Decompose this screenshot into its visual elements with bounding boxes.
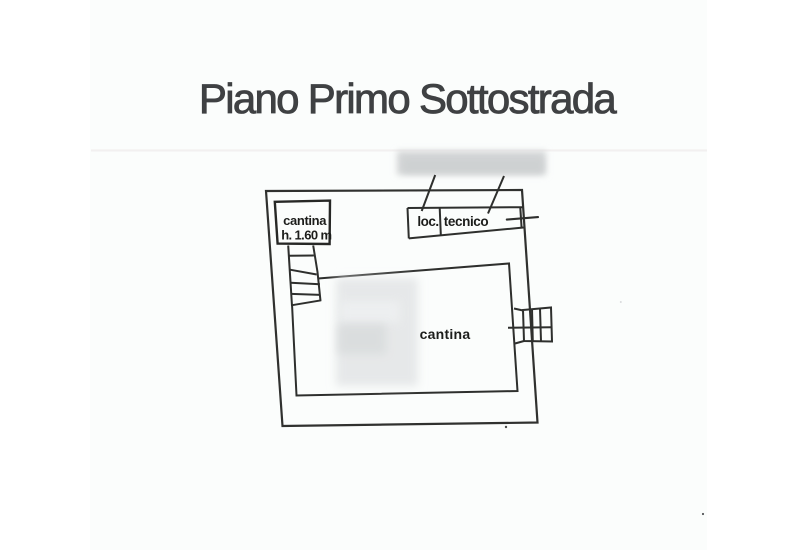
svg-text:tecnico: tecnico bbox=[444, 214, 489, 229]
svg-text:Piano Primo Sottostrada: Piano Primo Sottostrada bbox=[199, 75, 617, 122]
svg-text:cantina: cantina bbox=[283, 213, 327, 228]
svg-text:loc.: loc. bbox=[417, 214, 438, 229]
svg-text:cantina: cantina bbox=[420, 326, 471, 342]
svg-text:h. 1.60 m: h. 1.60 m bbox=[281, 227, 331, 242]
